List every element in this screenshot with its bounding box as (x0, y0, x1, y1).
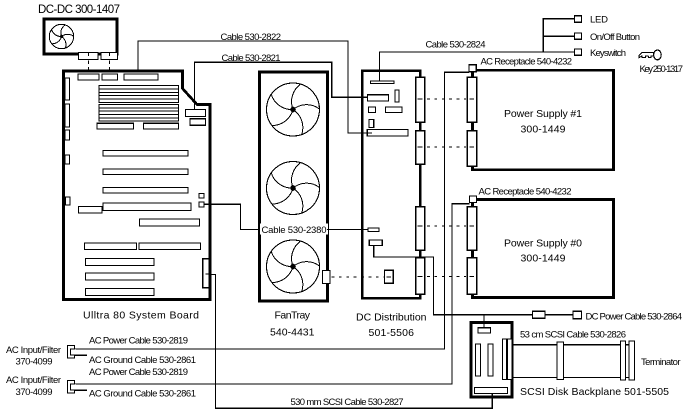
svg-text:AC Input/Filter: AC Input/Filter (6, 345, 61, 356)
svg-text:AC Receptacle 540-4232: AC Receptacle 540-4232 (481, 56, 573, 67)
svg-text:53 cm SCSI Cable 530-2826: 53 cm SCSI Cable 530-2826 (520, 330, 626, 341)
svg-text:540-4431: 540-4431 (270, 327, 315, 339)
svg-text:Keyswitch: Keyswitch (590, 48, 626, 59)
svg-text:370-4099: 370-4099 (16, 357, 53, 368)
svg-text:Power Supply #1: Power Supply #1 (504, 108, 582, 120)
svg-text:Cable 530-2824: Cable 530-2824 (426, 40, 486, 51)
svg-text:AC Power Cable 530-2819: AC Power Cable 530-2819 (89, 367, 188, 378)
svg-text:AC Ground Cable 530-2861: AC Ground Cable 530-2861 (89, 389, 196, 400)
svg-text:On/Off Button: On/Off Button (590, 32, 640, 43)
svg-text:DC Power Cable 530-2864: DC Power Cable 530-2864 (586, 312, 683, 323)
svg-text:DC Distribution: DC Distribution (356, 312, 427, 324)
svg-text:Power Supply #0: Power Supply #0 (504, 238, 582, 250)
svg-text:Cable 530-2380: Cable 530-2380 (262, 225, 327, 236)
svg-text:501-5506: 501-5506 (369, 327, 415, 339)
svg-text:Key 250-1317: Key 250-1317 (640, 64, 684, 75)
svg-text:AC Input/Filter: AC Input/Filter (6, 375, 61, 386)
svg-text:AC Receptacle 540-4232: AC Receptacle 540-4232 (479, 186, 572, 197)
svg-text:DC-DC 300-1407: DC-DC 300-1407 (38, 4, 120, 16)
svg-text:AC Ground Cable 530-2861: AC Ground Cable 530-2861 (89, 355, 196, 366)
svg-text:300-1449: 300-1449 (521, 124, 566, 136)
svg-text:SCSI Disk Backplane 501-5505: SCSI Disk Backplane 501-5505 (520, 386, 669, 398)
svg-text:FanTray: FanTray (275, 310, 311, 322)
svg-text:AC Power Cable 530-2819: AC Power Cable 530-2819 (89, 336, 188, 347)
svg-text:LED: LED (590, 15, 608, 26)
svg-text:Terminator: Terminator (641, 357, 681, 368)
svg-text:370-4099: 370-4099 (16, 387, 53, 398)
svg-text:530 mm SCSI Cable 530-2827: 530 mm SCSI Cable 530-2827 (291, 397, 404, 408)
svg-text:300-1449: 300-1449 (521, 253, 566, 265)
svg-text:Ulltra 80 System Board: Ulltra 80 System Board (83, 310, 199, 322)
